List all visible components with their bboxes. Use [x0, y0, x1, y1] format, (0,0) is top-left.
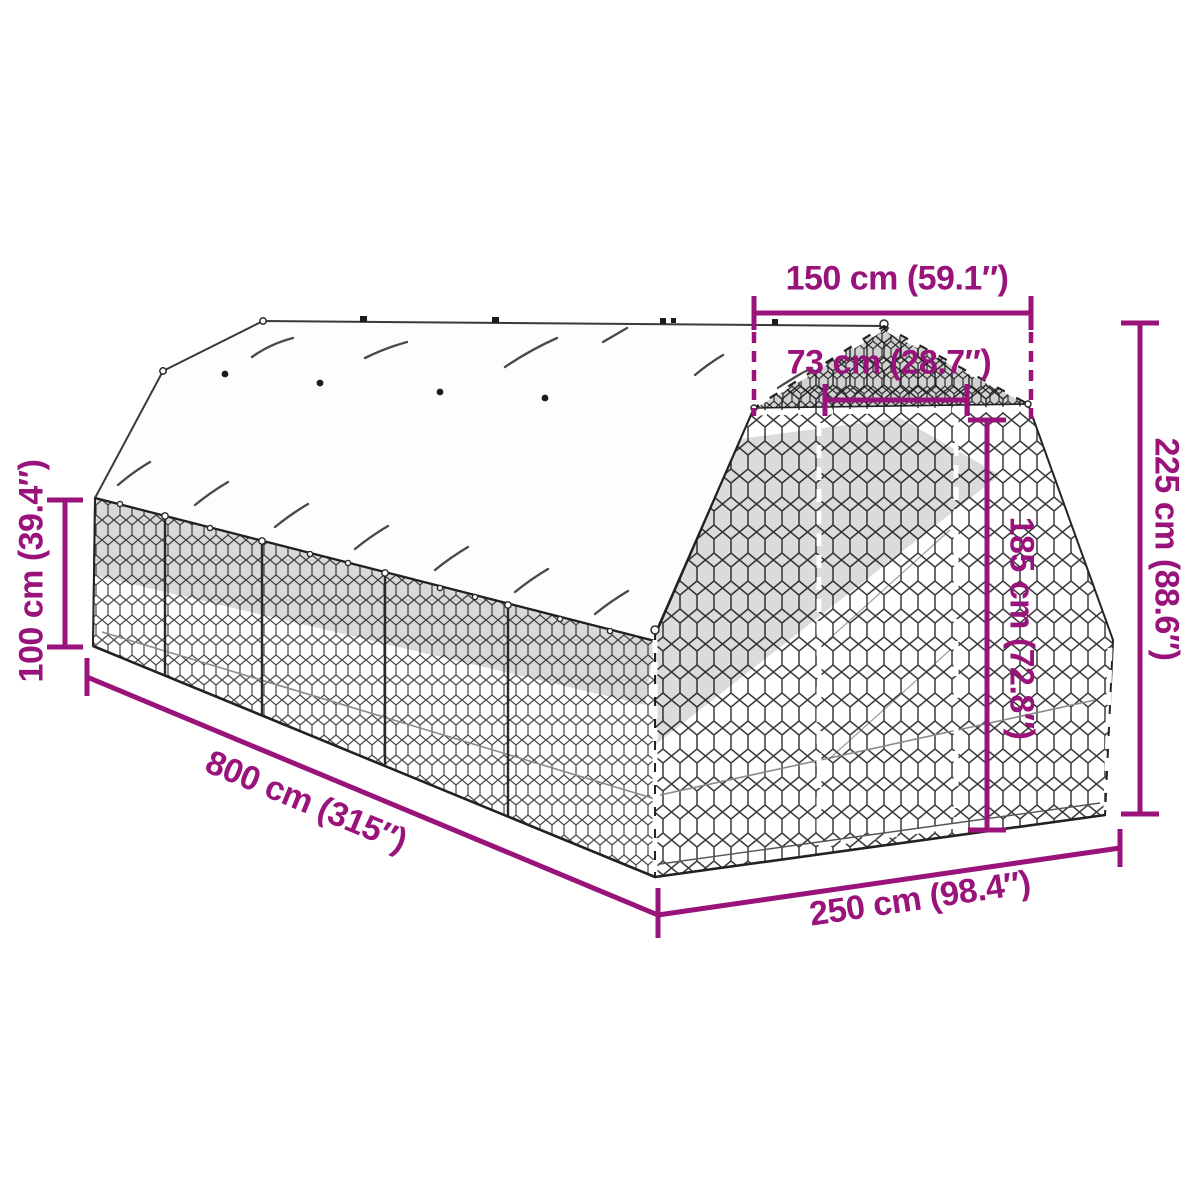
dim-wall-height [47, 500, 83, 647]
dim-label-door-width: 73 cm (28.7″) [787, 344, 991, 383]
dimension-diagram: 150 cm (59.1″) 73 cm (28.7″) 225 cm (88.… [0, 0, 1200, 1200]
dim-label-total-height: 225 cm (88.6″) [1147, 438, 1186, 661]
dim-label-top-width: 150 cm (59.1″) [786, 260, 1009, 299]
dim-label-door-height: 185 cm (72.8″) [1002, 517, 1041, 740]
dim-label-wall-height: 100 cm (39.4″) [13, 460, 52, 683]
